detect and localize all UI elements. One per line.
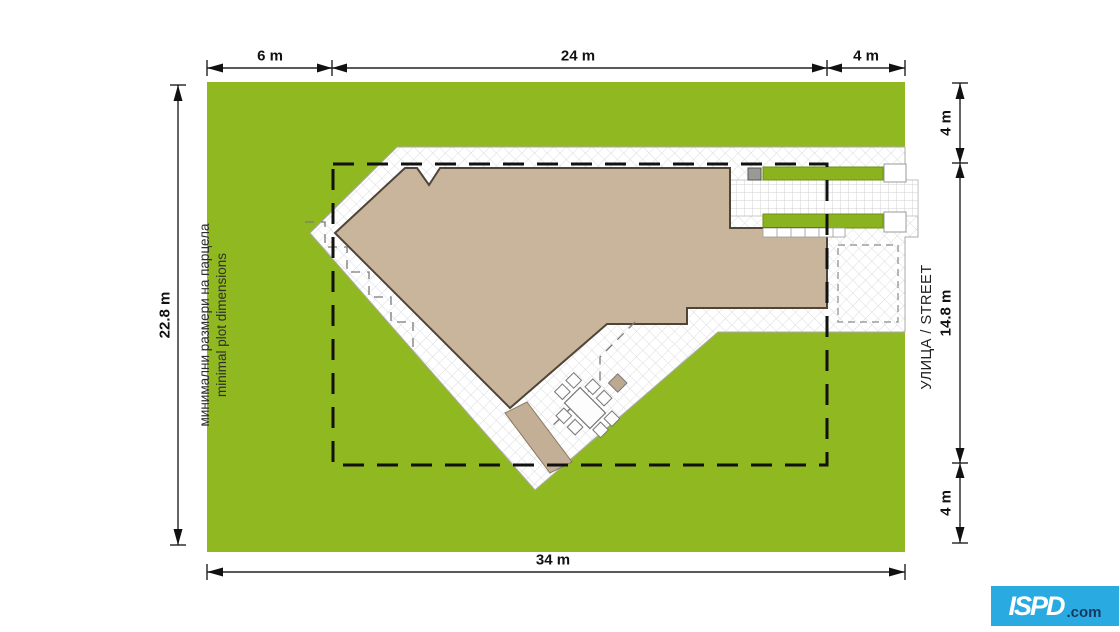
dim-right-bottom: 4 m [938,490,955,516]
dim-bottom-total: 34 m [536,552,570,569]
dim-top-left: 6 m [257,48,283,65]
dim-left-total: 22.8 m [157,292,174,339]
grass-paver-strip [763,167,883,180]
dim-right-middle: 14.8 m [938,290,955,337]
logo-mark: ISPD [1008,593,1063,620]
dim-right-top: 4 m [938,110,955,136]
site-plan-page: 6 m 24 m 4 m 34 m 22.8 m 4 m 14.8 m 4 m … [0,0,1120,632]
entry-step [884,212,906,232]
street-label: УЛИЦА / STREET [919,264,935,389]
plot-note-bg: минимални размери на парцела [196,224,213,427]
grass-paver-strip [763,214,883,228]
dim-top-right: 4 m [853,48,879,65]
chimney [748,168,761,180]
ispd-logo: ISPD .com [991,586,1119,626]
logo-suffix: .com [1067,605,1102,626]
entry-step [884,164,906,182]
dim-top-middle: 24 m [561,48,595,65]
plot-note-en: minimal plot dimensions [213,224,230,427]
plot-note: минимални размери на парцела minimal plo… [196,224,230,427]
